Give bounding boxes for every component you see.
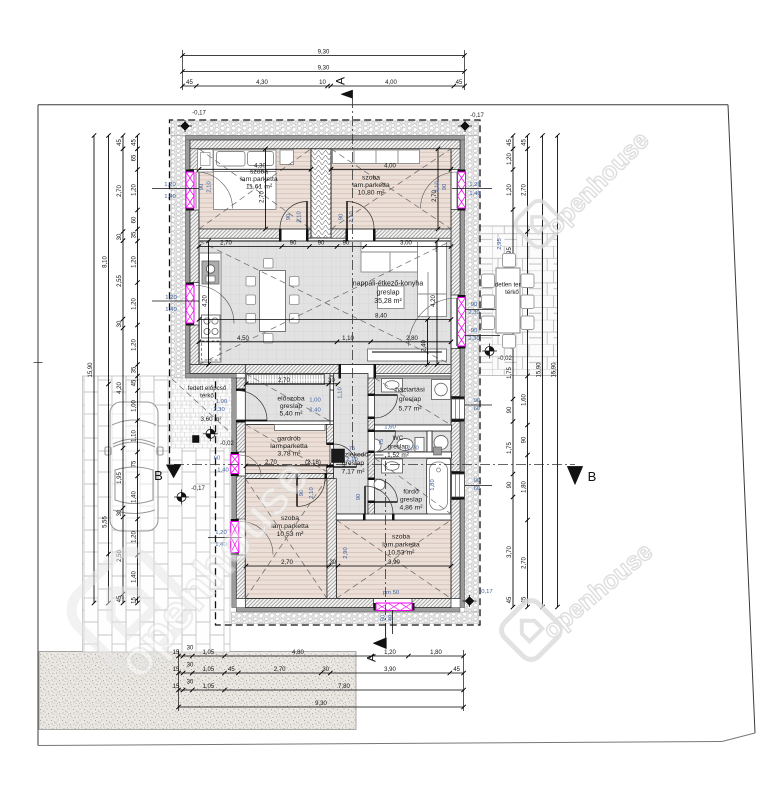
svg-text:4,00: 4,00 (384, 164, 396, 170)
svg-text:5,77 m²: 5,77 m² (398, 406, 422, 413)
svg-text:-0,17: -0,17 (192, 111, 206, 117)
svg-text:2,30: 2,30 (468, 310, 480, 316)
svg-text:1,40: 1,40 (132, 491, 138, 503)
svg-text:90: 90 (471, 328, 478, 334)
svg-text:1,20: 1,20 (469, 182, 481, 188)
svg-text:3,00: 3,00 (400, 241, 412, 247)
svg-text:1,40: 1,40 (469, 191, 481, 197)
svg-text:7,17 m²: 7,17 m² (341, 469, 365, 476)
svg-text:90: 90 (199, 183, 205, 190)
svg-text:1,00: 1,00 (309, 398, 321, 404)
svg-text:1,40: 1,40 (132, 571, 138, 583)
svg-text:-0,17: -0,17 (191, 486, 205, 492)
svg-text:2,70: 2,70 (117, 185, 123, 197)
svg-text:1,75: 1,75 (507, 367, 513, 379)
svg-text:-0,02: -0,02 (220, 441, 234, 447)
svg-text:45: 45 (507, 596, 513, 603)
svg-text:1,20: 1,20 (384, 650, 396, 656)
svg-text:2,70: 2,70 (522, 557, 528, 569)
svg-text:2,70: 2,70 (259, 191, 265, 203)
svg-text:előszoba: előszoba (277, 396, 304, 403)
svg-text:1,52 m²: 1,52 m² (387, 452, 409, 459)
svg-text:térkő: térkő (200, 393, 214, 400)
svg-text:90: 90 (290, 241, 297, 247)
svg-text:1,95: 1,95 (117, 472, 123, 484)
svg-text:30: 30 (187, 680, 194, 686)
svg-text:lam.parketta: lam.parketta (240, 176, 278, 183)
svg-text:1,40: 1,40 (217, 468, 229, 474)
svg-text:2,70: 2,70 (407, 446, 419, 452)
svg-text:szoba: szoba (392, 534, 410, 541)
svg-text:1,20: 1,20 (164, 182, 176, 188)
svg-text:90: 90 (471, 302, 478, 308)
svg-text:2,55: 2,55 (117, 275, 123, 287)
svg-text:15: 15 (173, 684, 180, 690)
svg-text:-0,17: -0,17 (470, 113, 484, 119)
svg-text:30: 30 (117, 320, 123, 327)
svg-text:1,20: 1,20 (132, 184, 138, 196)
svg-text:-0,02: -0,02 (498, 356, 512, 362)
svg-text:fedett előpcső: fedett előpcső (188, 385, 227, 392)
svg-text:WC: WC (393, 435, 404, 442)
svg-text:4,20: 4,20 (202, 295, 208, 307)
svg-text:lam.parketta: lam.parketta (382, 542, 420, 549)
svg-text:40: 40 (388, 614, 394, 621)
svg-text:4,20: 4,20 (431, 295, 437, 307)
svg-text:1,40: 1,40 (165, 307, 177, 313)
svg-text:45: 45 (507, 139, 513, 146)
svg-text:60: 60 (214, 456, 221, 462)
svg-text:45: 45 (132, 139, 138, 146)
svg-text:15,90: 15,90 (552, 362, 558, 378)
svg-text:60: 60 (474, 406, 481, 412)
svg-text:1,20: 1,20 (507, 153, 513, 165)
svg-text:greslap: greslap (377, 290, 400, 297)
svg-text:45: 45 (186, 80, 193, 86)
svg-text:9,30: 9,30 (318, 66, 330, 72)
svg-text:30: 30 (117, 233, 123, 240)
svg-text:10,53 m²: 10,53 m² (388, 550, 416, 557)
svg-text:45: 45 (453, 667, 460, 673)
svg-text:2,10: 2,10 (349, 211, 355, 223)
svg-text:3,90: 3,90 (384, 667, 396, 673)
svg-text:35: 35 (132, 366, 138, 373)
svg-text:90: 90 (442, 183, 448, 190)
svg-text:30: 30 (330, 560, 337, 566)
svg-text:4,00: 4,00 (385, 80, 397, 86)
svg-text:15,90: 15,90 (537, 362, 543, 378)
svg-text:90: 90 (356, 493, 362, 500)
svg-text:2,95: 2,95 (497, 238, 503, 250)
svg-text:90: 90 (339, 213, 345, 220)
svg-text:2,10: 2,10 (346, 457, 358, 463)
svg-text:1,00: 1,00 (132, 400, 138, 412)
svg-text:10,53 m²: 10,53 m² (277, 531, 305, 538)
svg-text:3,70: 3,70 (507, 546, 513, 558)
svg-text:térkő: térkő (505, 289, 519, 296)
svg-text:1,60: 1,60 (522, 394, 528, 406)
svg-text:90: 90 (318, 241, 325, 247)
svg-text:nappali-étkező-konyha: nappali-étkező-konyha (353, 281, 424, 288)
svg-text:1,80: 1,80 (522, 481, 528, 493)
svg-text:8,10: 8,10 (103, 256, 109, 268)
svg-text:90: 90 (474, 478, 481, 484)
svg-text:45: 45 (522, 139, 528, 146)
svg-text:90: 90 (507, 406, 513, 413)
svg-text:A: A (334, 77, 348, 85)
svg-text:1,20: 1,20 (132, 256, 138, 268)
svg-text:2,10: 2,10 (207, 181, 213, 193)
svg-text:50: 50 (381, 614, 387, 621)
svg-text:greslap: greslap (388, 444, 409, 451)
svg-text:15: 15 (132, 597, 138, 604)
svg-text:75: 75 (379, 438, 385, 445)
svg-text:B: B (588, 469, 597, 484)
svg-text:1,20: 1,20 (132, 531, 138, 543)
svg-text:1,80: 1,80 (430, 479, 436, 491)
svg-text:lam.parketta: lam.parketta (352, 182, 390, 189)
svg-text:1,10: 1,10 (338, 387, 344, 399)
svg-text:90: 90 (343, 241, 350, 247)
svg-text:háztartási: háztartási (395, 387, 425, 394)
svg-text:1,00: 1,00 (216, 399, 228, 405)
svg-text:9,30: 9,30 (315, 701, 327, 707)
svg-text:1,20: 1,20 (165, 295, 177, 301)
svg-text:30: 30 (187, 646, 194, 652)
svg-text:30: 30 (328, 378, 335, 384)
svg-text:30: 30 (187, 663, 194, 669)
svg-text:5,40 m²: 5,40 m² (279, 411, 303, 418)
svg-text:9,30: 9,30 (318, 50, 330, 56)
svg-text:1,60: 1,60 (384, 425, 396, 431)
svg-text:2,70: 2,70 (522, 184, 528, 196)
svg-text:60: 60 (474, 486, 481, 492)
svg-text:2,30: 2,30 (213, 407, 225, 413)
svg-text:2,40: 2,40 (421, 340, 427, 352)
svg-text:2,90: 2,90 (343, 547, 349, 559)
svg-text:65: 65 (132, 154, 138, 161)
svg-text:60: 60 (132, 216, 138, 223)
svg-text:-0,17: -0,17 (479, 589, 492, 595)
svg-text:1,20: 1,20 (507, 184, 513, 196)
svg-text:B: B (154, 468, 163, 483)
svg-text:35: 35 (132, 231, 138, 238)
svg-text:90: 90 (286, 213, 292, 220)
svg-text:1,40: 1,40 (164, 194, 176, 200)
svg-text:1,10: 1,10 (132, 430, 138, 442)
svg-text:10: 10 (319, 80, 326, 86)
svg-text:3,60 m²: 3,60 m² (201, 416, 222, 423)
svg-text:2,10: 2,10 (297, 211, 303, 223)
svg-text:11,61 m²: 11,61 m² (246, 184, 273, 191)
svg-text:90: 90 (522, 436, 528, 443)
svg-text:2,30: 2,30 (468, 336, 480, 342)
svg-text:3,90: 3,90 (388, 560, 400, 566)
svg-text:35,28 m²: 35,28 m² (374, 298, 402, 305)
svg-text:greslap: greslap (280, 403, 303, 410)
svg-text:1,20: 1,20 (132, 298, 138, 310)
svg-text:8,40: 8,40 (375, 314, 387, 320)
svg-text:greslap: greslap (399, 396, 422, 403)
svg-text:A: A (365, 654, 379, 662)
svg-text:90: 90 (507, 481, 513, 488)
svg-text:2,70: 2,70 (220, 241, 232, 247)
svg-text:fürdő: fürdő (403, 489, 419, 496)
svg-text:1,05: 1,05 (203, 650, 215, 656)
svg-text:2,70: 2,70 (278, 378, 290, 384)
svg-text:1,80: 1,80 (430, 650, 442, 656)
svg-text:15: 15 (173, 667, 180, 673)
svg-text:szoba: szoba (250, 169, 268, 176)
svg-text:45: 45 (117, 139, 123, 146)
svg-text:45: 45 (117, 595, 123, 602)
svg-text:1,05: 1,05 (203, 667, 215, 673)
svg-text:45: 45 (228, 667, 235, 673)
svg-text:5,55: 5,55 (103, 516, 109, 528)
svg-text:greslap: greslap (400, 497, 423, 504)
svg-text:45: 45 (456, 80, 463, 86)
svg-text:1,20: 1,20 (132, 339, 138, 351)
svg-text:2,10: 2,10 (435, 181, 441, 193)
svg-text:4,86 m²: 4,86 m² (399, 505, 423, 512)
svg-text:2,70: 2,70 (274, 667, 286, 673)
svg-text:1,75: 1,75 (507, 442, 513, 454)
svg-text:4,30: 4,30 (256, 80, 268, 86)
svg-text:7,80: 7,80 (338, 684, 350, 690)
svg-text:szoba: szoba (362, 175, 380, 182)
svg-text:2,70: 2,70 (281, 560, 293, 566)
svg-text:gardrób: gardrób (277, 436, 301, 443)
svg-text:90: 90 (474, 398, 481, 404)
svg-text:(2,18): (2,18) (305, 460, 321, 466)
svg-text:15,90: 15,90 (88, 362, 94, 378)
svg-text:30: 30 (117, 509, 123, 516)
svg-text:30: 30 (322, 667, 329, 673)
svg-text:75: 75 (132, 460, 138, 467)
svg-text:1,05: 1,05 (203, 684, 215, 690)
svg-text:4,50: 4,50 (237, 336, 249, 342)
svg-text:4,80: 4,80 (292, 650, 304, 656)
svg-text:2,80: 2,80 (406, 336, 418, 342)
svg-text:4,20: 4,20 (117, 382, 123, 394)
svg-text:45: 45 (132, 379, 138, 386)
svg-text:2,40: 2,40 (309, 408, 321, 414)
svg-text:10,80 m²: 10,80 m² (358, 190, 386, 197)
